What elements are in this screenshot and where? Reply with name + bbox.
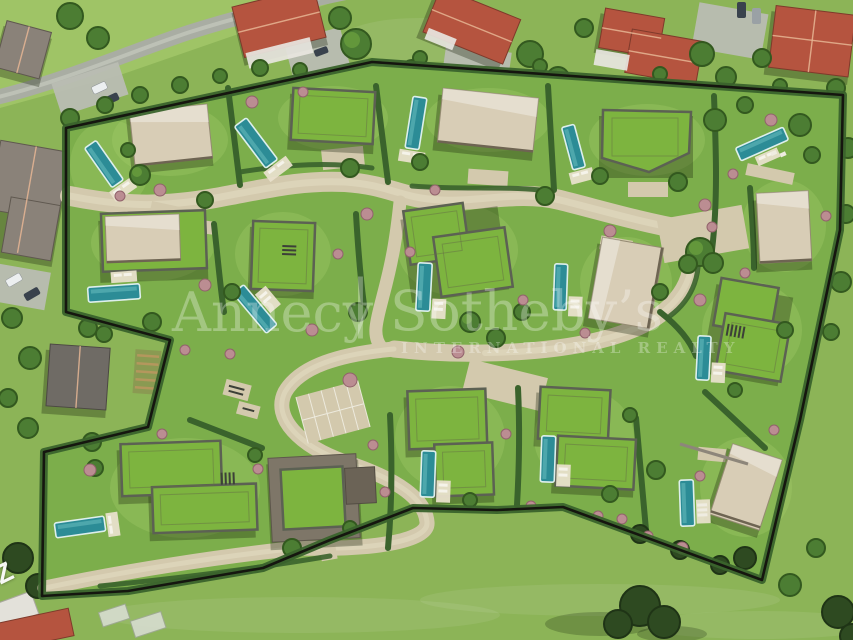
clubhouse-green-roof — [266, 453, 379, 551]
neighbor-house-grey — [41, 344, 110, 418]
villa-green-roof — [287, 88, 376, 154]
villa-green-roof — [248, 221, 317, 299]
villa-beige-roof — [433, 88, 539, 161]
villa-green-roof — [599, 110, 693, 178]
neighbor-house-red — [764, 5, 853, 85]
aerial-site-plan: Annecy | Sotheby’s INTERNATIONAL REALTY … — [0, 0, 853, 640]
site-plan-render — [0, 0, 853, 640]
villa-beige-roof — [752, 191, 812, 273]
